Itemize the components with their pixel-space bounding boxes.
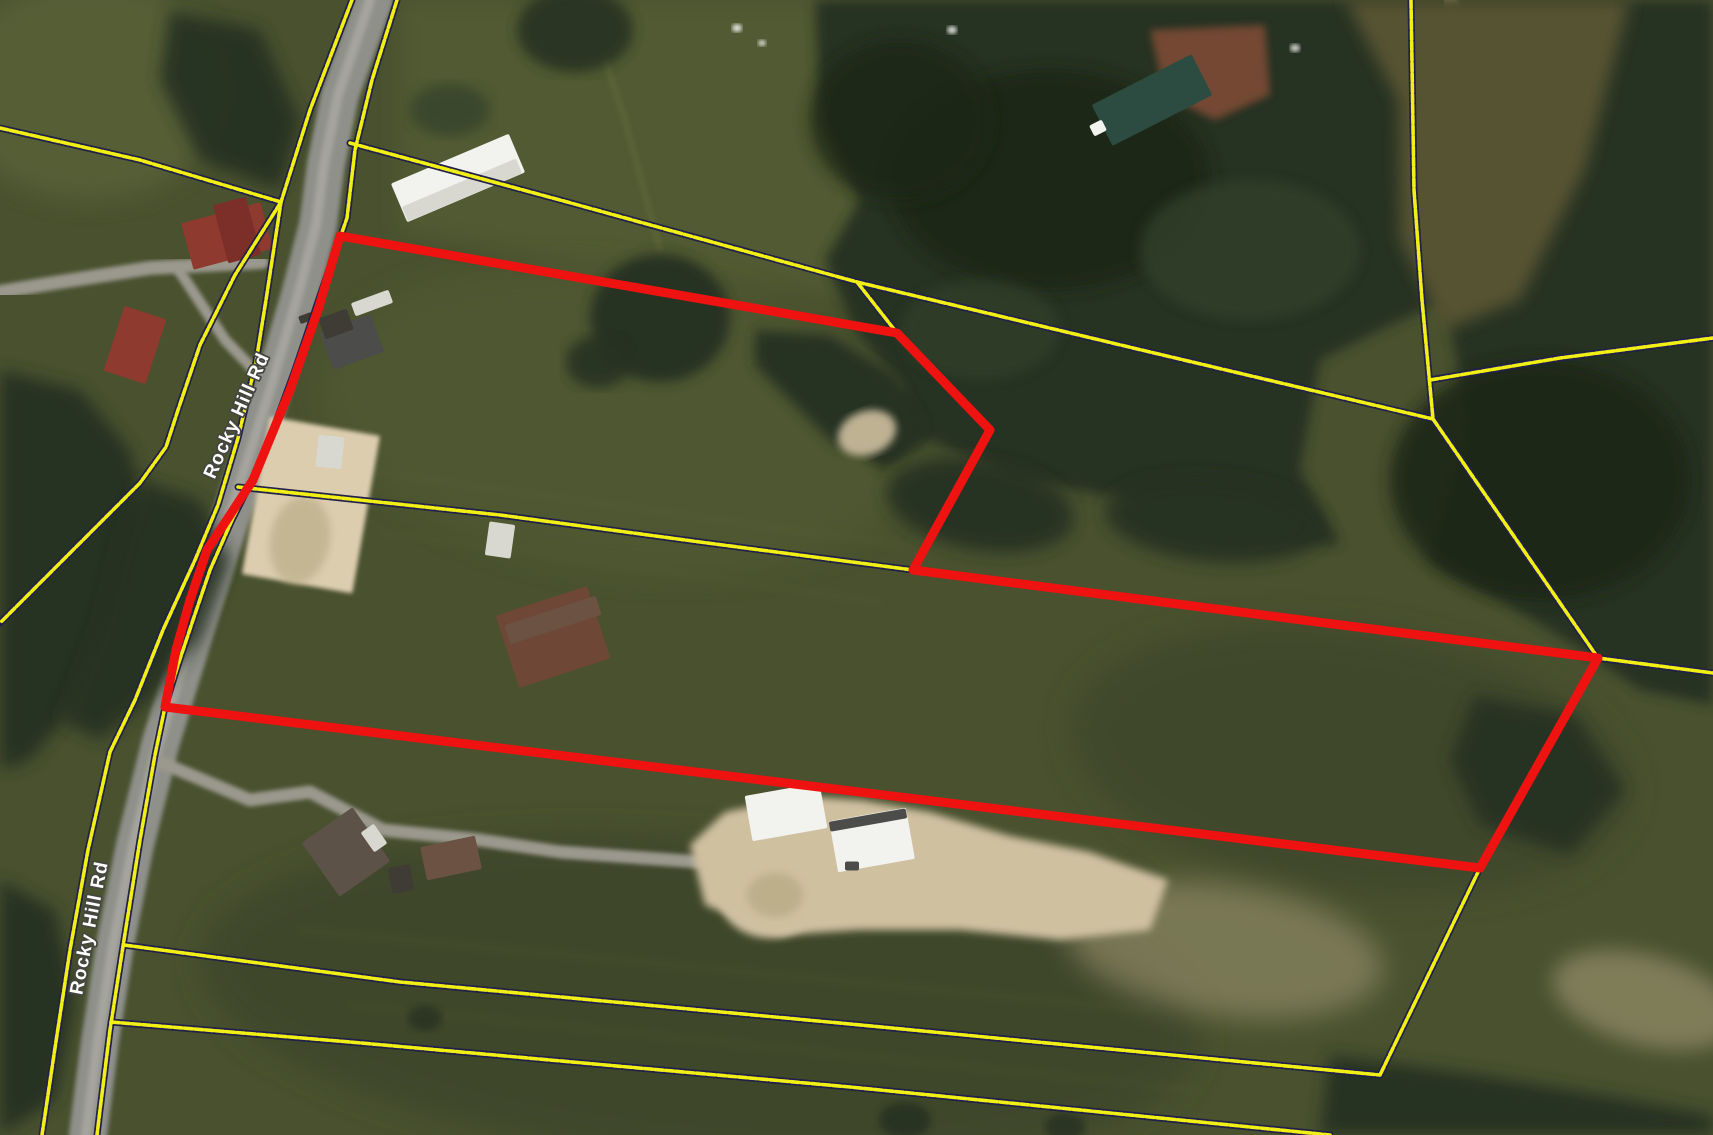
white-speck-3 — [947, 26, 957, 34]
gray-shed — [485, 521, 515, 558]
white-speck-2 — [758, 40, 766, 46]
white-speck-1 — [732, 24, 742, 32]
forest-dark-3 — [810, 40, 990, 200]
white-speck-4 — [1290, 44, 1300, 52]
satellite-map-canvas[interactable]: Rocky Hill RdRocky Hill Rd — [0, 0, 1713, 1135]
vehicle-2 — [845, 862, 859, 871]
south-shed — [388, 864, 414, 893]
white-shed-small — [315, 435, 344, 470]
barn-dirt-speckle — [747, 873, 803, 917]
forest-light-1 — [1140, 180, 1360, 320]
mid-clump-2 — [566, 336, 630, 388]
gis-parcel-map[interactable]: Rocky Hill RdRocky Hill Rd — [0, 0, 1713, 1135]
top-clump-2 — [410, 84, 490, 136]
forest-dark-2 — [1390, 360, 1690, 600]
bottom-dot-3 — [408, 1005, 442, 1031]
